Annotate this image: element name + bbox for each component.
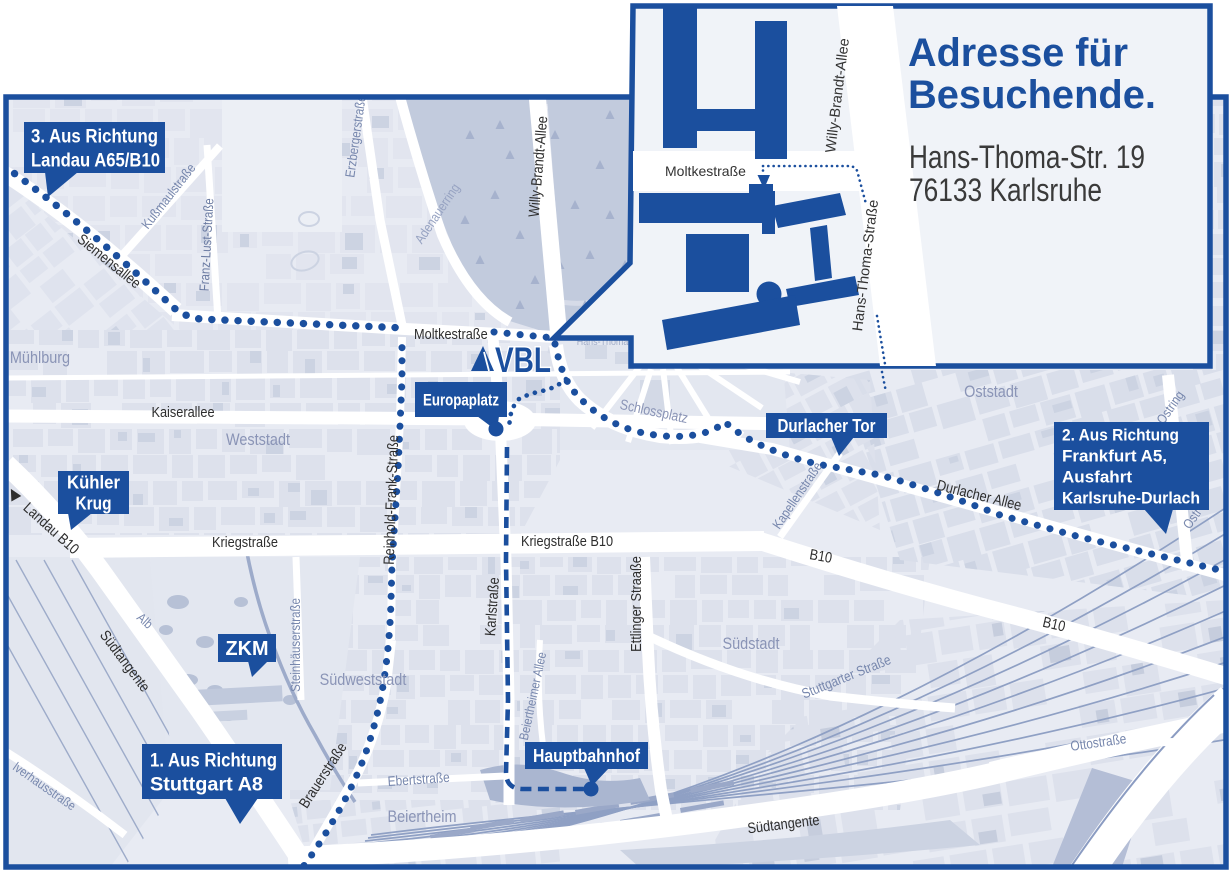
svg-text:Hauptbahnhof: Hauptbahnhof [533,746,641,766]
svg-text:1. Aus Richtung: 1. Aus Richtung [150,750,277,771]
svg-text:Kühler: Kühler [67,472,120,493]
svg-text:Südweststadt: Südweststadt [320,670,407,689]
svg-text:Europaplatz: Europaplatz [423,391,499,410]
svg-text:ZKM: ZKM [226,638,269,660]
svg-text:VBL: VBL [495,341,551,380]
svg-text:Steinhäuserstraße: Steinhäuserstraße [288,598,303,692]
svg-text:Südstadt: Südstadt [723,634,780,653]
svg-text:Stuttgart A8: Stuttgart A8 [150,774,263,795]
svg-text:Moltkestraße: Moltkestraße [414,326,488,343]
svg-text:Weststadt: Weststadt [226,430,290,449]
svg-text:Landau A65/B10: Landau A65/B10 [31,150,160,171]
svg-text:Beiertheim: Beiertheim [387,807,456,826]
svg-text:Durlacher Tor: Durlacher Tor [778,416,876,436]
svg-text:Hans-Thoma-Str. 19: Hans-Thoma-Str. 19 [909,139,1145,175]
svg-text:2. Aus Richtung: 2. Aus Richtung [1062,426,1179,444]
svg-text:Oststadt: Oststadt [964,382,1018,401]
svg-text:Mühlburg: Mühlburg [10,348,70,367]
svg-text:Ausfahrt: Ausfahrt [1062,468,1133,486]
svg-text:3. Aus Richtung: 3. Aus Richtung [31,126,158,147]
svg-text:Adresse für: Adresse für [908,31,1128,75]
svg-text:Moltkestraße: Moltkestraße [665,163,746,179]
svg-text:Krug: Krug [76,493,112,514]
svg-text:Kriegstraße B10: Kriegstraße B10 [521,533,613,550]
svg-text:Karlsruhe-Durlach: Karlsruhe-Durlach [1062,489,1200,507]
svg-text:76133 Karlsruhe: 76133 Karlsruhe [909,172,1102,208]
svg-text:Besuchende.: Besuchende. [908,73,1156,117]
svg-text:Kaiserallee: Kaiserallee [151,404,214,421]
svg-text:Ettlinger Straaße: Ettlinger Straaße [628,556,645,652]
svg-text:Kriegstraße: Kriegstraße [212,534,278,551]
svg-text:Frankfurt A5,: Frankfurt A5, [1062,447,1167,465]
